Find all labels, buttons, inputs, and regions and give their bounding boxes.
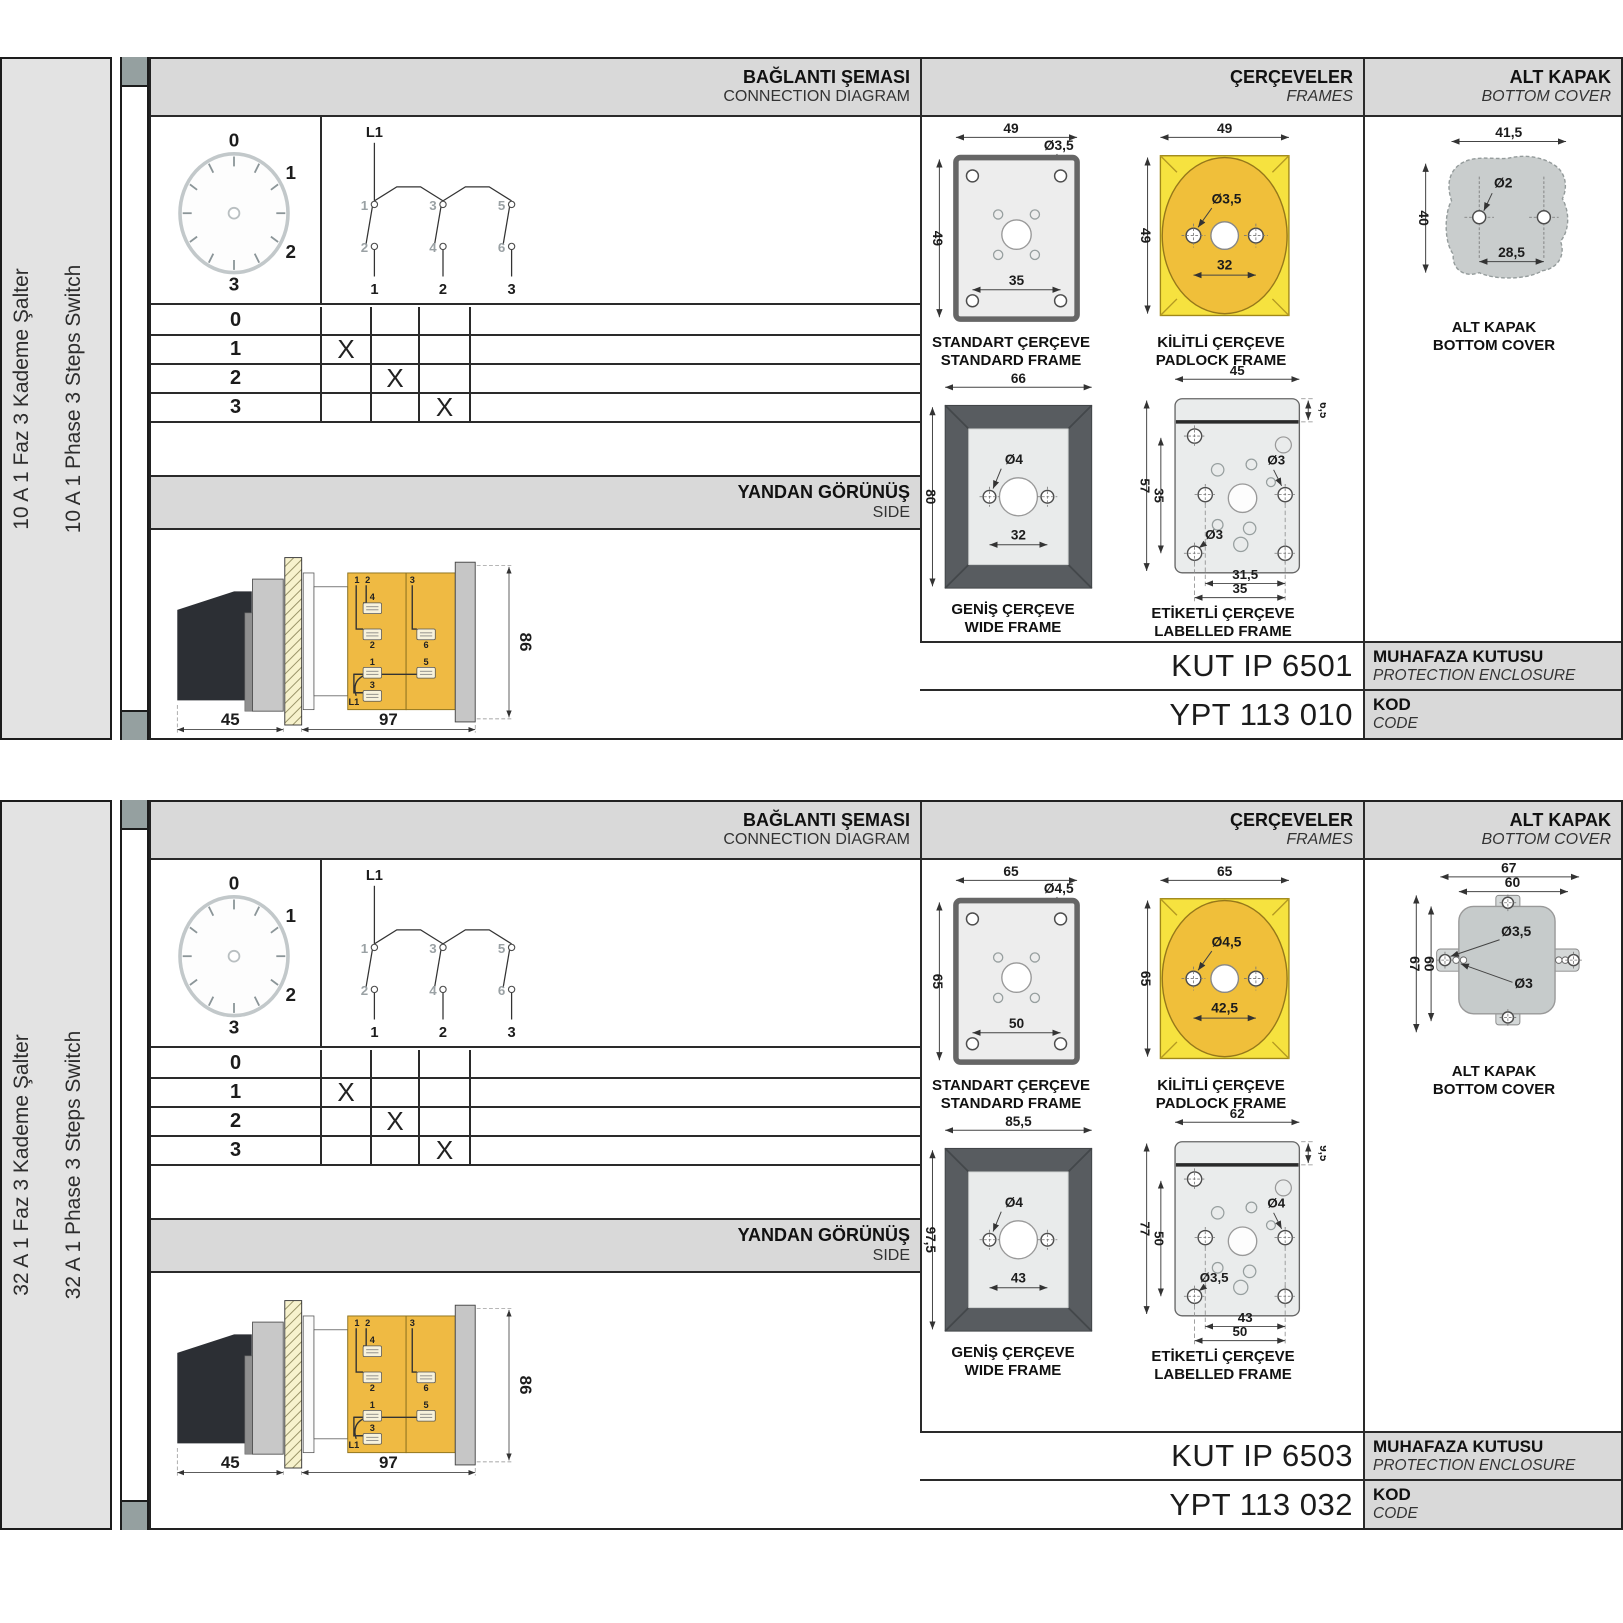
dim-width-inner: 60 [1505, 874, 1521, 890]
dim-holes-outer: 50 [1232, 1324, 1247, 1339]
step-mark [320, 1137, 370, 1166]
enclosure-code: KUT IP 6503 [920, 1433, 1363, 1479]
dim-hole-dia: Ø3,5 [1044, 138, 1074, 153]
binding-strip [120, 57, 149, 740]
pole-number-2: 2 [439, 282, 447, 298]
product-code-description: KOD CODE [1363, 691, 1621, 738]
front-plate [253, 579, 284, 711]
column-headers: BAĞLANTI ŞEMASI CONNECTION DIAGRAM ÇERÇE… [151, 59, 1621, 117]
step-row-label: 0 [151, 1050, 320, 1079]
dim-hole-dia-left: Ø3,5 [1200, 1270, 1229, 1285]
product-code: YPT 113 032 [920, 1481, 1363, 1528]
term-label-l1: L1 [349, 697, 360, 707]
wide-frame-figure: 66 80 Ø4 32 GENİŞ ÇERÇEVE WID [915, 371, 1111, 638]
flange [303, 1316, 314, 1453]
connection-diagram-row: 0 1 2 3 L1 [151, 117, 920, 305]
step-table: 0 1 X 2 X 3 X [151, 1050, 920, 1166]
step-mark: X [370, 1108, 418, 1137]
padlock-frame-drawing: 65 65 Ø4,5 42,5 [1129, 862, 1313, 1075]
step-mark [418, 1050, 469, 1079]
dim-hole-dia: Ø4,5 [1044, 881, 1074, 896]
header-connection-diagram: BAĞLANTI ŞEMASI CONNECTION DIAGRAM [151, 59, 920, 115]
side-view-figure: 1 2 3 4 2 6 1 5 3 L1 45 97 86 [165, 1282, 595, 1487]
column-divider-2 [1363, 802, 1365, 1528]
panel-wall [285, 558, 302, 725]
column-headers: BAĞLANTI ŞEMASI CONNECTION DIAGRAM ÇERÇE… [151, 802, 1621, 860]
step-row-label: 2 [151, 1108, 320, 1137]
dim-height: 97,5 [923, 1227, 938, 1254]
dim-body-height: 86 [516, 1376, 535, 1395]
switch-handle [177, 591, 251, 700]
step-row-label: 3 [151, 394, 320, 423]
term-label-2b: 2 [370, 640, 375, 650]
terminal-2: 2 [361, 240, 368, 255]
schematic-feed-label: L1 [366, 125, 383, 141]
dim-handle-depth: 45 [221, 710, 240, 729]
figure-caption: ALT KAPAK BOTTOM COVER [1433, 1063, 1555, 1100]
step-mark [320, 307, 370, 336]
labelled-frame-drawing: 45 6,5 57 35 Ø3 [1120, 365, 1326, 603]
dial-pos-1: 1 [285, 163, 296, 184]
step-row-spacer [469, 307, 920, 336]
standard-frame-drawing: 49 Ø3,5 49 35 [919, 119, 1103, 332]
dim-hole-spacing: 32 [1011, 527, 1026, 542]
dial-pos-2: 2 [285, 242, 296, 263]
dim-height-inner: 60 [1422, 956, 1438, 972]
dim-width: 41,5 [1495, 124, 1522, 140]
dial-pos-2: 2 [285, 985, 296, 1006]
step-row-spacer [469, 1108, 920, 1137]
step-mark: X [320, 336, 370, 365]
dim-hole-spacing: 28,5 [1498, 244, 1525, 260]
dim-width: 49 [1003, 121, 1019, 136]
pole-number-2: 2 [439, 1025, 447, 1041]
dim-hole-spacing: 32 [1217, 258, 1233, 273]
dim-hole-dia-left: Ø3 [1205, 527, 1223, 542]
switch-body-rear [406, 573, 455, 710]
term-label-1b: 1 [370, 1400, 375, 1410]
contact-schematic-figure: L1 [320, 117, 920, 303]
term-label-1: 1 [354, 1318, 359, 1328]
neck [314, 1330, 348, 1439]
enclosure-code-description: MUHAFAZA KUTUSU PROTECTION ENCLOSURE [1363, 643, 1621, 689]
dim-hole-dia-right: Ø3 [1267, 452, 1285, 467]
strip-square-bottom [122, 710, 147, 740]
bottom-cover-figure: 41,5 40 Ø2 28,5 ALT KAPAK BOTTOM COVER [1379, 123, 1609, 356]
step-row-spacer [469, 365, 920, 394]
terminal-1: 1 [361, 941, 369, 956]
dim-width: 65 [1003, 864, 1019, 879]
term-label-1: 1 [354, 575, 359, 585]
term-label-2: 2 [365, 575, 370, 585]
bottom-cover-figure: 67 60 67 60 Ø3,5 Ø3 [1379, 862, 1609, 1100]
connection-diagram-row: 0 1 2 3 L1 [151, 860, 920, 1048]
dim-hole-dia: Ø4 [1005, 452, 1024, 467]
dim-hole-spacing: 35 [1009, 273, 1025, 288]
standard-frame-figure: 65 Ø4,5 65 50 STANDART ÇERÇEVE STANDARD … [913, 862, 1109, 1114]
product-title-turkish: 10 A 1 Faz 3 Kademe Şalter [10, 268, 34, 530]
dim-body-depth: 97 [379, 1453, 398, 1472]
term-label-3: 3 [410, 1318, 415, 1328]
header-connection-diagram: BAĞLANTI ŞEMASI CONNECTION DIAGRAM [151, 802, 920, 858]
step-mark [370, 1137, 418, 1166]
enclosure-code-row: KUT IP 6501 MUHAFAZA KUTUSU PROTECTION E… [920, 641, 1621, 689]
figure-caption: ETİKETLİ ÇERÇEVE LABELLED FRAME [1151, 1348, 1294, 1385]
step-mark [370, 307, 418, 336]
step-mark [370, 1079, 418, 1108]
product-title-english: 32 A 1 Phase 3 Steps Switch [62, 1031, 86, 1300]
labelled-frame-figure: 45 6,5 57 35 Ø3 [1117, 365, 1329, 642]
terminal-4: 4 [429, 983, 437, 998]
wide-frame-drawing: 66 80 Ø4 32 [918, 371, 1108, 599]
dim-width: 49 [1217, 121, 1233, 136]
end-plate [455, 1305, 475, 1465]
figure-caption: GENİŞ ÇERÇEVE WIDE FRAME [951, 601, 1074, 638]
term-label-2b: 2 [370, 1383, 375, 1393]
dim-height: 49 [1138, 228, 1153, 244]
bottom-cover-drawing: 67 60 67 60 Ø3,5 Ø3 [1383, 862, 1605, 1061]
dim-strip-height: 6,5 [1317, 402, 1326, 419]
terminal-3: 3 [429, 198, 436, 213]
datasheet-body: BAĞLANTI ŞEMASI CONNECTION DIAGRAM ÇERÇE… [149, 800, 1623, 1530]
product-code-description: KOD CODE [1363, 1481, 1621, 1528]
strip-square-bottom [122, 1500, 147, 1530]
dim-holes-inner: 43 [1238, 1310, 1253, 1325]
schematic-drawing: L1 [338, 862, 632, 1044]
pole-number-1: 1 [370, 282, 378, 298]
figure-caption: STANDART ÇERÇEVE STANDARD FRAME [932, 334, 1090, 371]
end-plate [455, 562, 475, 722]
dial-pos-3: 3 [229, 275, 240, 296]
panel-wall [285, 1301, 302, 1468]
dim-body-height: 86 [516, 633, 535, 652]
side-view-header: YANDAN GÖRÜNÜŞ SIDE [151, 475, 920, 530]
terminal-4: 4 [429, 240, 437, 255]
term-label-l1: L1 [349, 1440, 360, 1450]
terminal-5: 5 [498, 198, 506, 213]
step-row-label: 3 [151, 1137, 320, 1166]
terminal-3: 3 [429, 941, 436, 956]
side-view-drawing: 1 2 3 4 2 6 1 5 3 L1 45 97 86 [165, 539, 595, 739]
term-label-4: 4 [370, 1335, 376, 1345]
schematic-drawing: L1 [338, 119, 632, 301]
pole-number-1: 1 [370, 1025, 378, 1041]
dial-pos-3: 3 [229, 1018, 240, 1039]
labelled-frame-drawing: 62 9,5 77 50 Ø4 [1120, 1108, 1326, 1346]
step-mark [320, 1108, 370, 1137]
neck [314, 587, 348, 696]
step-mark [320, 394, 370, 423]
step-row-label: 1 [151, 336, 320, 365]
enclosure-code-description: MUHAFAZA KUTUSU PROTECTION ENCLOSURE [1363, 1433, 1621, 1479]
dial-pos-0: 0 [229, 874, 240, 895]
step-mark [418, 1108, 469, 1137]
terminal-1: 1 [361, 198, 369, 213]
dim-width: 66 [1011, 371, 1027, 386]
term-label-1b: 1 [370, 657, 375, 667]
term-label-3b: 3 [370, 1423, 375, 1433]
step-row-label: 1 [151, 1079, 320, 1108]
terminal-6: 6 [498, 983, 505, 998]
figure-caption: GENİŞ ÇERÇEVE WIDE FRAME [951, 1344, 1074, 1381]
product-code: YPT 113 010 [920, 691, 1363, 738]
step-mark [418, 336, 469, 365]
step-table: 0 1 X 2 X 3 X [151, 307, 920, 423]
product-title-turkish: 32 A 1 Faz 3 Kademe Şalter [10, 1034, 34, 1296]
labelled-frame-figure: 62 9,5 77 50 Ø4 [1117, 1108, 1329, 1385]
padlock-frame-drawing: 49 49 Ø3,5 32 [1129, 119, 1313, 332]
step-mark: X [320, 1079, 370, 1108]
dim-hole-spacing: 42,5 [1211, 1001, 1238, 1016]
step-row-label: 0 [151, 307, 320, 336]
step-row-spacer [469, 336, 920, 365]
switch-dial-figure: 0 1 2 3 [151, 117, 320, 303]
dim-height-inner: 35 [1152, 488, 1167, 503]
dim-hole-dia: Ø4,5 [1212, 934, 1242, 949]
step-mark [370, 1050, 418, 1079]
dim-width: 65 [1217, 864, 1233, 879]
step-mark [418, 365, 469, 394]
dim-hole-dia-small: Ø3 [1514, 975, 1533, 991]
dim-height-inner: 50 [1152, 1231, 1167, 1246]
term-label-3: 3 [410, 575, 415, 585]
wide-frame-figure: 85,5 97,5 Ø4 43 GENİŞ ÇERÇEVE [915, 1114, 1111, 1381]
dim-height: 65 [930, 974, 945, 990]
product-section-10a: 10 A 1 Faz 3 Kademe Şalter 10 A 1 Phase … [0, 57, 1623, 740]
term-label-6: 6 [424, 640, 429, 650]
binding-strip [120, 800, 149, 1530]
figure-caption: ALT KAPAK BOTTOM COVER [1433, 319, 1555, 356]
step-row-label: 2 [151, 365, 320, 394]
dim-height: 40 [1416, 210, 1432, 226]
side-view-figure: 1 2 3 4 2 6 1 5 3 L1 45 97 86 [165, 539, 595, 744]
front-plate [253, 1322, 284, 1454]
term-label-2: 2 [365, 1318, 370, 1328]
padlock-frame-figure: 49 49 Ø3,5 32 KİLİTLİ ÇERÇEVE [1123, 119, 1319, 371]
product-title-english: 10 A 1 Phase 3 Steps Switch [62, 264, 86, 533]
dim-strip-height: 9,5 [1317, 1145, 1326, 1162]
dim-body-depth: 97 [379, 710, 398, 729]
strip-square-top [122, 800, 147, 830]
terminal-5: 5 [498, 941, 506, 956]
term-label-4: 4 [370, 592, 376, 602]
header-bottom-cover: ALT KAPAK BOTTOM COVER [1363, 59, 1621, 115]
dim-hole-dia: Ø3,5 [1212, 191, 1242, 206]
standard-frame-drawing: 65 Ø4,5 65 50 [919, 862, 1103, 1075]
step-row-spacer [469, 1137, 920, 1166]
step-mark [370, 394, 418, 423]
switch-body-rear [406, 1316, 455, 1453]
product-code-row: YPT 113 010 KOD CODE [920, 689, 1621, 738]
step-mark [370, 336, 418, 365]
dim-height-outer: 57 [1137, 478, 1152, 493]
strip-square-top [122, 57, 147, 87]
switch-handle [177, 1334, 251, 1443]
dim-width: 62 [1230, 1108, 1245, 1121]
dial-pos-0: 0 [229, 131, 240, 152]
terminal-2: 2 [361, 983, 368, 998]
product-code-row: YPT 113 032 KOD CODE [920, 1479, 1621, 1528]
dim-height-outer: 77 [1137, 1221, 1152, 1236]
dim-holes-inner: 31,5 [1232, 567, 1258, 582]
terminal-6: 6 [498, 240, 505, 255]
dim-hole-dia: Ø2 [1494, 175, 1513, 191]
catalog-page: 10 A 1 Faz 3 Kademe Şalter 10 A 1 Phase … [0, 0, 1623, 1623]
dim-height-outer: 67 [1407, 956, 1423, 972]
term-label-5: 5 [424, 1400, 429, 1410]
step-mark [320, 1050, 370, 1079]
term-label-6: 6 [424, 1383, 429, 1393]
side-view-header: YANDAN GÖRÜNÜŞ SIDE [151, 1218, 920, 1273]
dial-drawing: 0 1 2 3 [153, 868, 315, 1039]
header-frames: ÇERÇEVELER FRAMES [920, 59, 1363, 115]
pole-number-3: 3 [508, 282, 516, 298]
dim-holes-outer: 35 [1232, 581, 1247, 596]
enclosure-code-row: KUT IP 6503 MUHAFAZA KUTUSU PROTECTION E… [920, 1431, 1621, 1479]
step-mark: X [418, 394, 469, 423]
step-row-spacer [469, 394, 920, 423]
dim-height: 49 [930, 231, 945, 247]
flange [303, 573, 314, 710]
dim-width: 45 [1230, 365, 1245, 378]
datasheet-body: BAĞLANTI ŞEMASI CONNECTION DIAGRAM ÇERÇE… [149, 57, 1623, 740]
dial-drawing: 0 1 2 3 [153, 125, 315, 296]
step-row-spacer [469, 1050, 920, 1079]
dim-hole-dia-right: Ø4 [1267, 1195, 1285, 1210]
step-mark: X [418, 1137, 469, 1166]
step-mark [418, 1079, 469, 1108]
pole-number-3: 3 [508, 1025, 516, 1041]
product-section-32a: 32 A 1 Faz 3 Kademe Şalter 32 A 1 Phase … [0, 800, 1623, 1530]
header-bottom-cover: ALT KAPAK BOTTOM COVER [1363, 802, 1621, 858]
standard-frame-figure: 49 Ø3,5 49 35 STANDART ÇERÇEVE STANDARD … [913, 119, 1109, 371]
dim-height: 65 [1138, 971, 1153, 987]
dim-hole-spacing: 43 [1011, 1270, 1027, 1285]
schematic-feed-label: L1 [366, 868, 383, 884]
dim-hole-spacing: 50 [1009, 1016, 1025, 1031]
header-frames: ÇERÇEVELER FRAMES [920, 802, 1363, 858]
padlock-frame-figure: 65 65 Ø4,5 42,5 KİLİTLİ ÇERÇEVE [1123, 862, 1319, 1114]
dim-hole-dia: Ø4 [1005, 1195, 1024, 1210]
term-label-5: 5 [424, 657, 429, 667]
step-row-spacer [469, 1079, 920, 1108]
contact-schematic-figure: L1 [320, 860, 920, 1046]
enclosure-code: KUT IP 6501 [920, 643, 1363, 689]
dim-height: 80 [923, 489, 938, 504]
switch-dial-figure: 0 1 2 3 [151, 860, 320, 1046]
dim-width: 85,5 [1005, 1114, 1032, 1129]
step-mark [418, 307, 469, 336]
dim-hole-dia-tab: Ø3,5 [1501, 923, 1531, 939]
step-mark [320, 365, 370, 394]
side-view-drawing: 1 2 3 4 2 6 1 5 3 L1 45 97 86 [165, 1282, 595, 1482]
product-title-rail: 10 A 1 Faz 3 Kademe Şalter 10 A 1 Phase … [0, 57, 112, 740]
dial-pos-1: 1 [285, 906, 296, 927]
term-label-3b: 3 [370, 680, 375, 690]
dim-handle-depth: 45 [221, 1453, 240, 1472]
bottom-cover-drawing: 41,5 40 Ø2 28,5 [1383, 123, 1605, 317]
figure-caption: ETİKETLİ ÇERÇEVE LABELLED FRAME [1151, 605, 1294, 642]
step-mark: X [370, 365, 418, 394]
column-divider-2 [1363, 59, 1365, 738]
wide-frame-drawing: 85,5 97,5 Ø4 43 [918, 1114, 1108, 1342]
figure-caption: STANDART ÇERÇEVE STANDARD FRAME [932, 1077, 1090, 1114]
product-title-rail: 32 A 1 Faz 3 Kademe Şalter 32 A 1 Phase … [0, 800, 112, 1530]
